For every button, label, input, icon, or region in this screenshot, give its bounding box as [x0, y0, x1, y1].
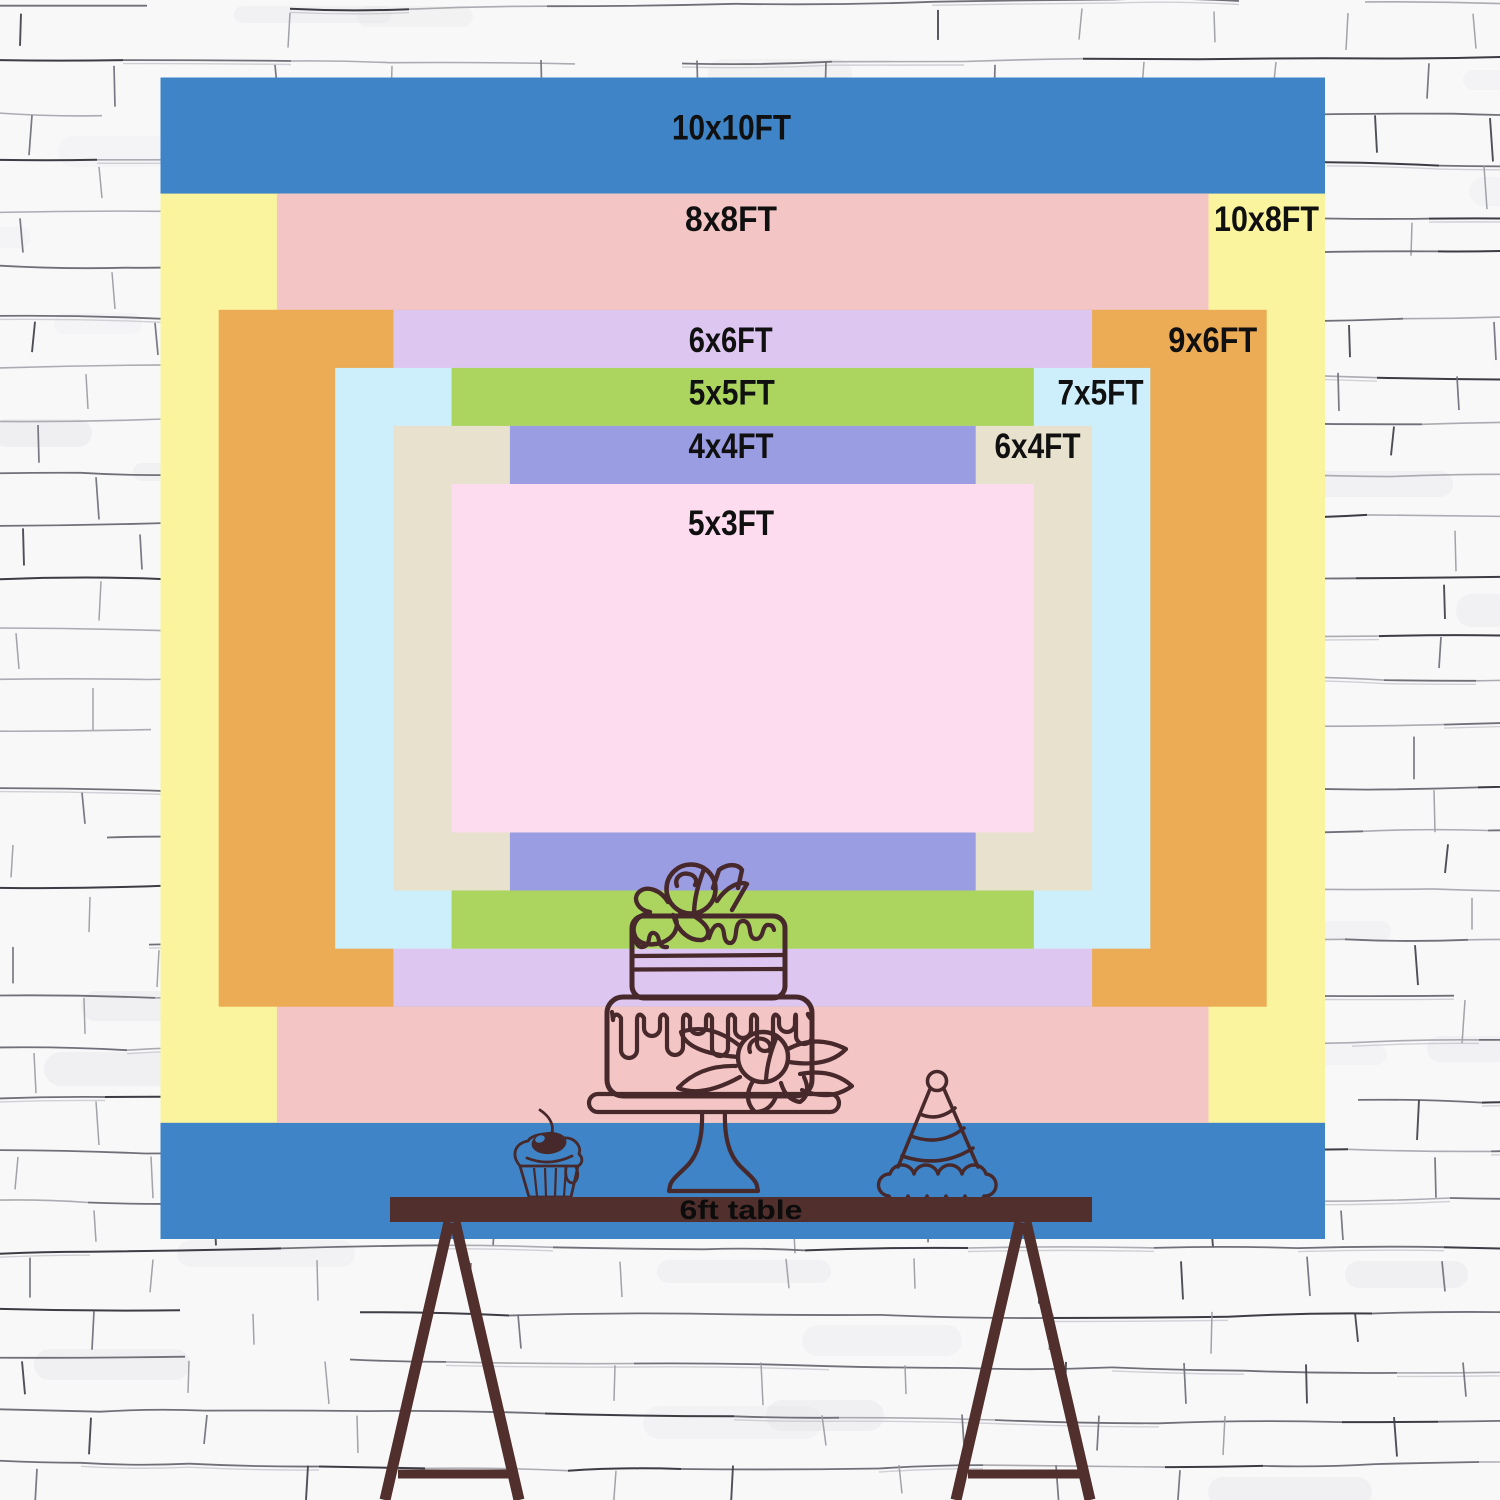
- svg-text:9x6FT: 9x6FT: [1168, 321, 1257, 360]
- svg-text:6x6FT: 6x6FT: [689, 321, 773, 360]
- svg-text:5x5FT: 5x5FT: [689, 374, 775, 413]
- svg-text:8x8FT: 8x8FT: [685, 200, 777, 239]
- svg-text:10x10FT: 10x10FT: [672, 109, 791, 148]
- svg-text:5x3FT: 5x3FT: [688, 504, 774, 543]
- svg-text:6x4FT: 6x4FT: [995, 427, 1081, 466]
- svg-text:7x5FT: 7x5FT: [1058, 374, 1144, 413]
- svg-text:10x8FT: 10x8FT: [1214, 200, 1319, 239]
- svg-text:4x4FT: 4x4FT: [689, 427, 774, 466]
- svg-text:6ft table: 6ft table: [680, 1195, 803, 1225]
